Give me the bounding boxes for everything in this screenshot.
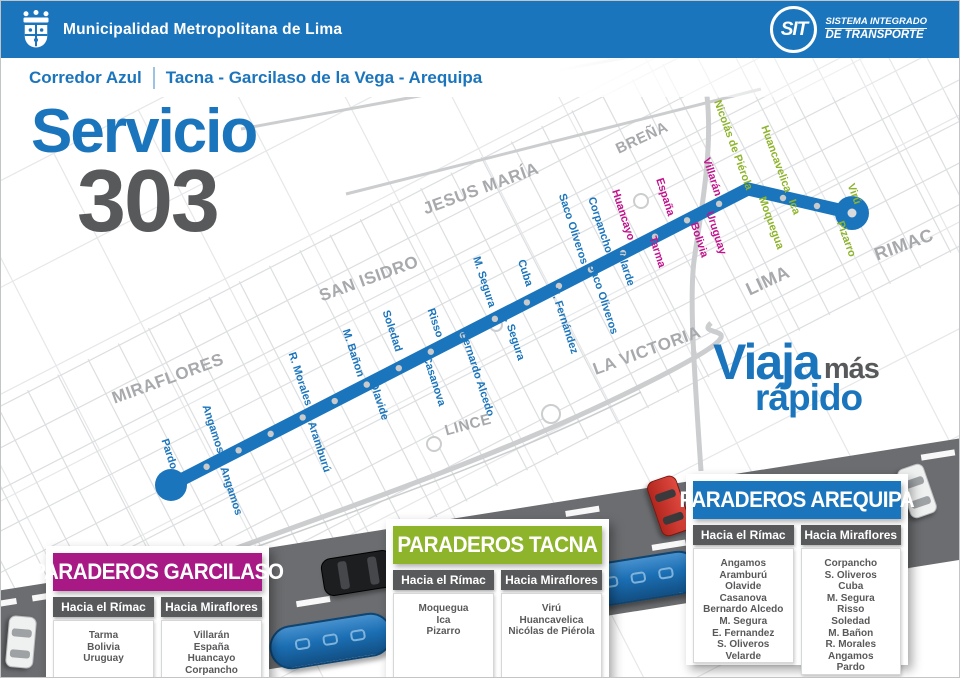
white-car-icon xyxy=(5,615,37,669)
stop-list: VirúHuancavelicaNicólas de Piérola xyxy=(501,593,602,678)
divider xyxy=(153,67,155,89)
lima-coat-of-arms-logo xyxy=(21,10,51,50)
slogan-block: Viaja más rápido xyxy=(713,337,879,416)
stop-name: Corpancho xyxy=(802,558,901,570)
stop-name: Olavide xyxy=(694,581,793,593)
stop-name: Uruguay xyxy=(54,653,153,665)
stop-name: Risso xyxy=(802,604,901,616)
stop-name: Nicólas de Piérola xyxy=(502,626,601,638)
stop-name: Tarma xyxy=(54,630,153,642)
stop-name: Bolivia xyxy=(54,642,153,654)
stop-name: Moquegua xyxy=(394,603,493,615)
header-bar: Municipalidad Metropolitana de Lima SIT … xyxy=(1,1,959,58)
service-number-block: Servicio 303 xyxy=(31,101,256,245)
stop-list: TarmaBoliviaUruguay xyxy=(53,620,154,678)
stop-name: S. Oliveros xyxy=(694,639,793,651)
stop-name: Ica xyxy=(394,615,493,627)
paraderos-garcilaso-panel: PARADEROS GARCILASO Hacia el Rímac Tarma… xyxy=(46,546,269,678)
stop-name: Villarán xyxy=(162,630,261,642)
sit-acronym: SIT xyxy=(770,6,817,53)
stop-name: Velarde xyxy=(694,651,793,663)
sit-name-line2: DE TRANSPORTE xyxy=(825,29,927,42)
slogan-word-rapido: rápido xyxy=(755,379,879,416)
panel-title-bar: PARADEROS TACNA xyxy=(393,526,602,564)
direction-heading: Hacia el Rímac xyxy=(53,597,154,617)
stop-list: MoqueguaIcaPizarro xyxy=(393,593,494,678)
stop-name: M. Bañon xyxy=(802,628,901,640)
route-title-strip: Corredor Azul Tacna - Garcilaso de la Ve… xyxy=(1,58,959,97)
paraderos-tacna-panel: PARADEROS TACNA Hacia el Rímac MoqueguaI… xyxy=(386,519,609,678)
stop-name: Aramburú xyxy=(694,570,793,582)
terminal-pardo-dot xyxy=(155,469,187,501)
stop-name: Cuba xyxy=(802,581,901,593)
sit-logo: SIT SISTEMA INTEGRADO DE TRANSPORTE xyxy=(770,6,927,53)
stop-list: VillaránEspañaHuancayoCorpancho xyxy=(161,620,262,678)
stop-name: España xyxy=(162,642,261,654)
service-number: 303 xyxy=(77,157,256,245)
stop-name: Virú xyxy=(502,603,601,615)
municipality-title: Municipalidad Metropolitana de Lima xyxy=(63,21,342,39)
panel-title: PARADEROS GARCILASO xyxy=(32,559,284,585)
direction-heading: Hacia el Rímac xyxy=(693,525,794,545)
route-name: Tacna - Garcilaso de la Vega - Arequipa xyxy=(166,68,483,88)
corridor-name: Corredor Azul xyxy=(29,68,142,88)
direction-heading: Hacia el Rímac xyxy=(393,570,494,590)
direction-heading: Hacia Miraflores xyxy=(801,525,902,545)
stop-name: M. Segura xyxy=(694,616,793,628)
stop-list: AngamosAramburúOlavideCasanovaBernardo A… xyxy=(693,548,794,663)
stop-name: Bernardo Alcedo xyxy=(694,604,793,616)
stop-name: Huancayo xyxy=(162,653,261,665)
stop-name: Casanova xyxy=(694,593,793,605)
sit-name-line1: SISTEMA INTEGRADO xyxy=(825,17,927,29)
stop-name: Pardo xyxy=(802,662,901,674)
stop-name: Corpancho xyxy=(162,665,261,677)
stop-name: R. Morales xyxy=(802,639,901,651)
direction-heading: Hacia Miraflores xyxy=(161,597,262,617)
stop-name: Soledad xyxy=(802,616,901,628)
panel-title-bar: PARADEROS AREQUIPA xyxy=(693,481,901,519)
paraderos-arequipa-panel: PARADEROS AREQUIPA Hacia el Rímac Angamo… xyxy=(686,474,908,665)
stop-name: S. Oliveros xyxy=(802,570,901,582)
panel-title: PARADEROS AREQUIPA xyxy=(680,487,915,513)
stop-name: Angamos xyxy=(694,558,793,570)
stop-name: Pizarro xyxy=(394,626,493,638)
panel-title: PARADEROS TACNA xyxy=(397,532,597,558)
stop-list: CorpanchoS. OliverosCubaM. SeguraRissoSo… xyxy=(801,548,902,675)
stop-name: E. Fernandez xyxy=(694,628,793,640)
panel-title-bar: PARADEROS GARCILASO xyxy=(53,553,262,591)
stop-name: Angamos xyxy=(802,651,901,663)
direction-heading: Hacia Miraflores xyxy=(501,570,602,590)
stop-name: M. Segura xyxy=(802,593,901,605)
stop-name: Huancavelica xyxy=(502,615,601,627)
route-poster: PardoAngamosAngamosR. MoralesAramburúM. … xyxy=(0,0,960,678)
